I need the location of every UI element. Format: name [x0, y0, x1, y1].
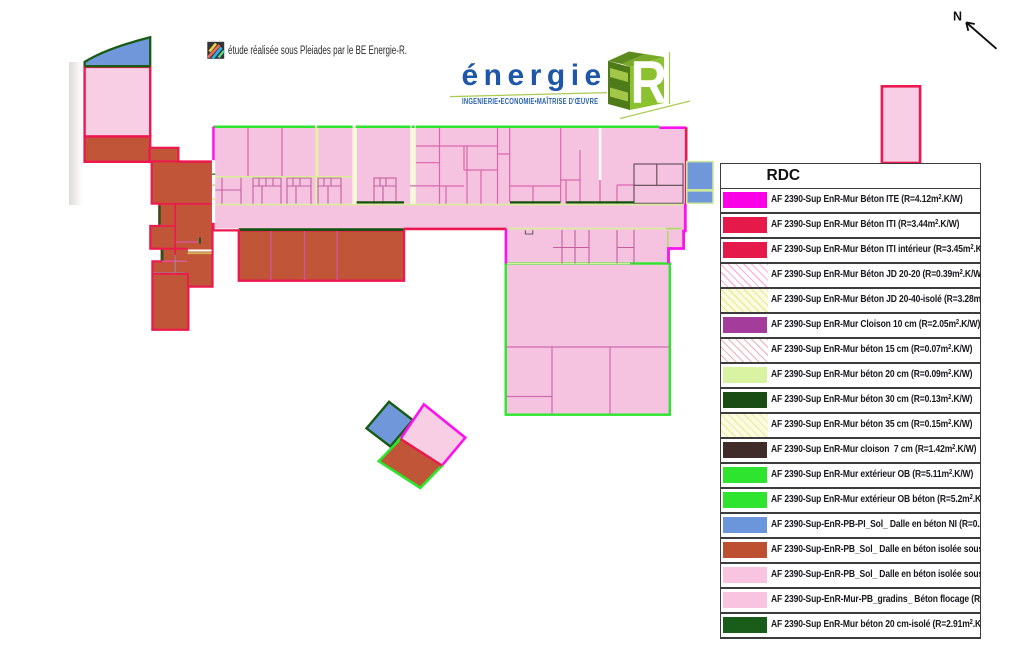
svg-text:R: R	[631, 49, 667, 116]
svg-text:N: N	[953, 10, 962, 24]
